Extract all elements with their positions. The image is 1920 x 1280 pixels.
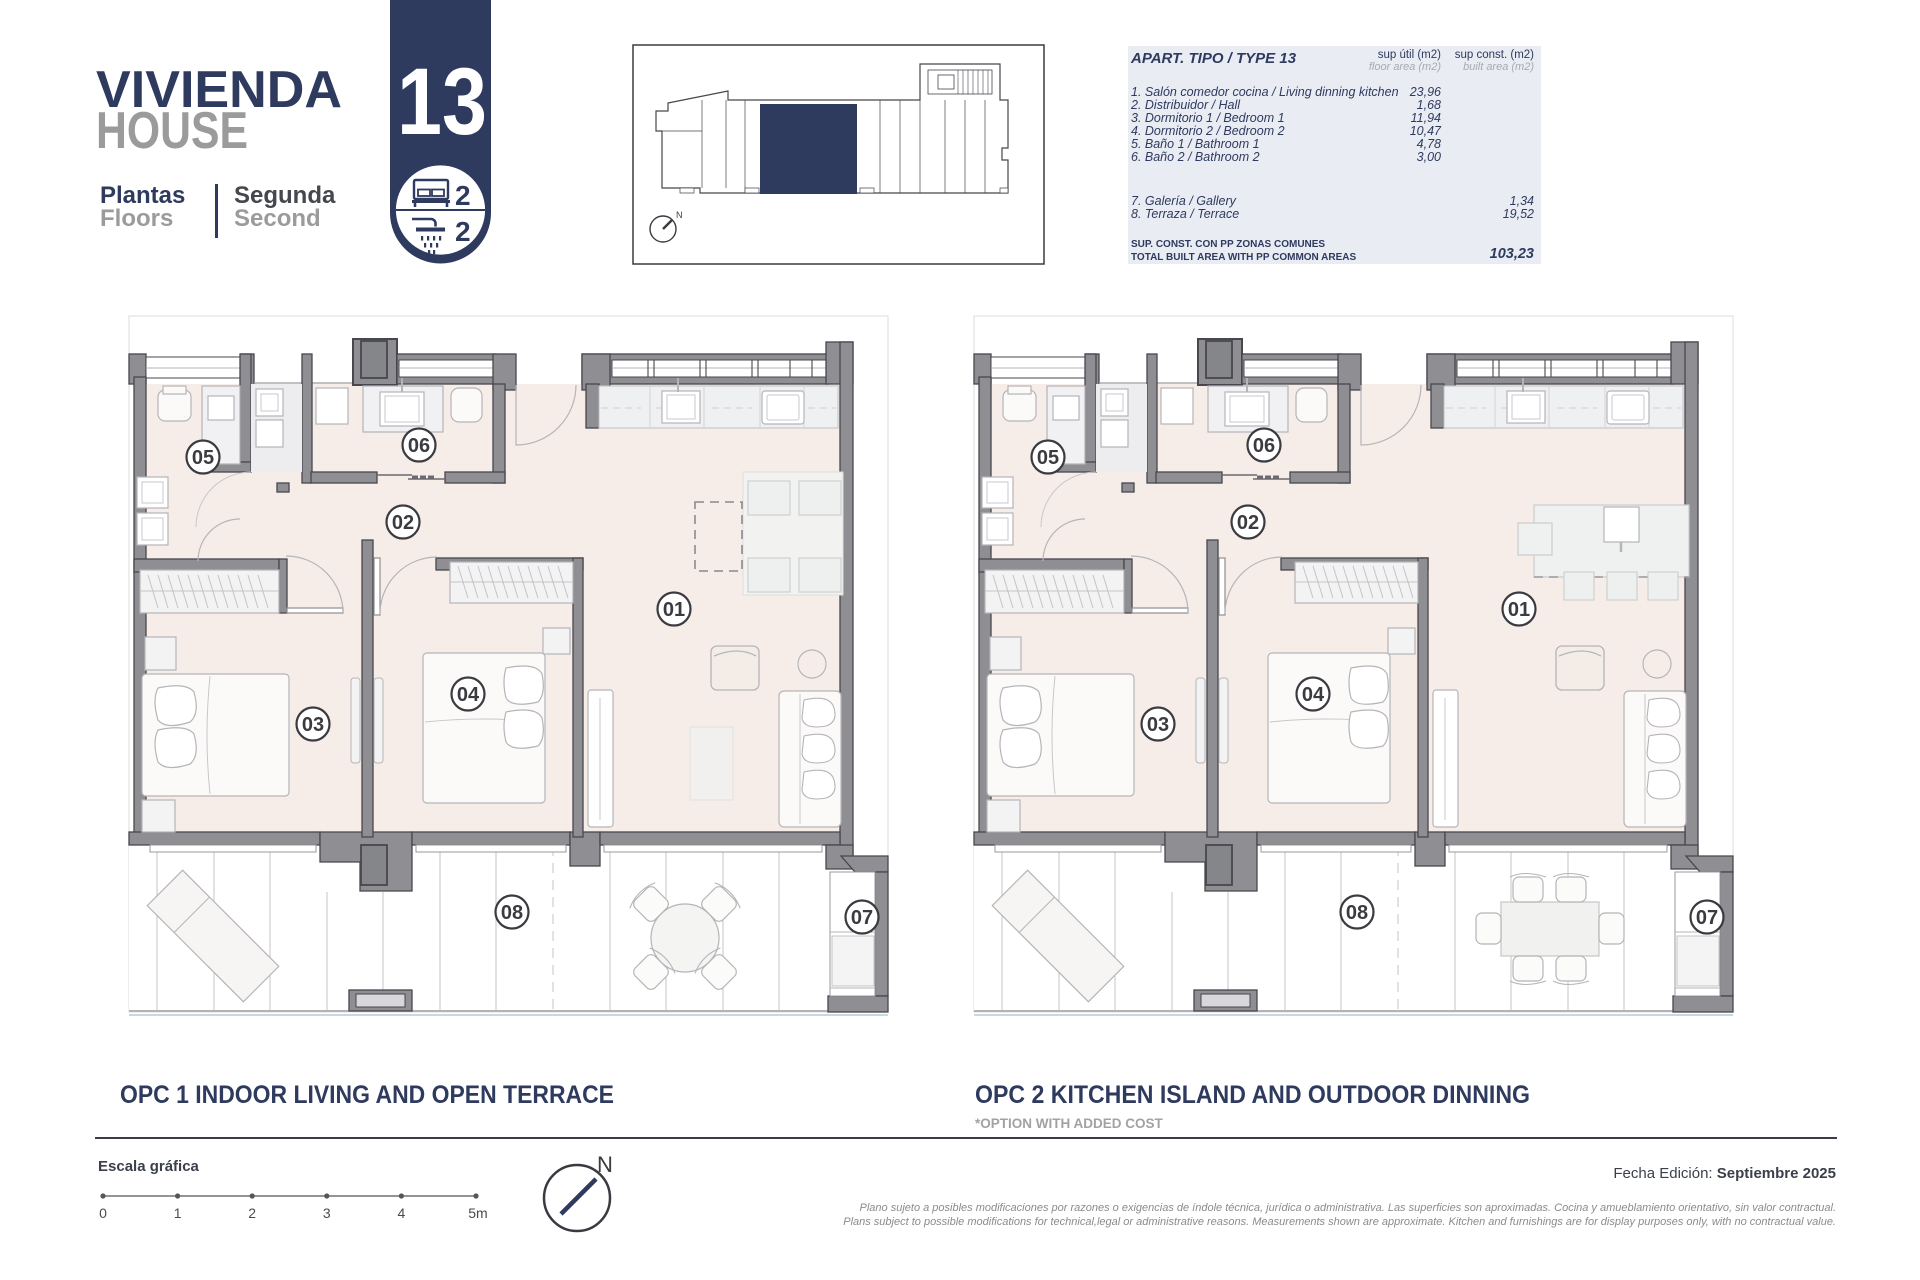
svg-text:0: 0 bbox=[99, 1205, 107, 1221]
svg-text:3,00: 3,00 bbox=[1417, 150, 1441, 164]
svg-text:4. Dormitorio 2 / Bedroom 2: 4. Dormitorio 2 / Bedroom 2 bbox=[1131, 124, 1285, 138]
svg-text:3. Dormitorio 1 / Bedroom 1: 3. Dormitorio 1 / Bedroom 1 bbox=[1131, 111, 1285, 125]
svg-text:Plans subject to possible modi: Plans subject to possible modifications … bbox=[843, 1216, 1836, 1228]
svg-text:19,52: 19,52 bbox=[1503, 207, 1534, 221]
svg-text:4,78: 4,78 bbox=[1417, 137, 1441, 151]
svg-text:23,96: 23,96 bbox=[1409, 85, 1441, 99]
svg-text:TOTAL BUILT AREA WITH PP COMMO: TOTAL BUILT AREA WITH PP COMMON AREAS bbox=[1131, 252, 1357, 263]
svg-text:*OPTION WITH ADDED COST: *OPTION WITH ADDED COST bbox=[975, 1116, 1164, 1131]
svg-text:OPC 1 INDOOR LIVING AND OPEN T: OPC 1 INDOOR LIVING AND OPEN TERRACE bbox=[120, 1081, 614, 1109]
svg-text:11,94: 11,94 bbox=[1411, 111, 1441, 125]
svg-text:1,34: 1,34 bbox=[1510, 194, 1534, 208]
svg-text:HOUSE: HOUSE bbox=[96, 102, 248, 160]
svg-text:103,23: 103,23 bbox=[1490, 246, 1534, 262]
svg-text:Escala gráfica: Escala gráfica bbox=[98, 1158, 200, 1175]
svg-text:Floors: Floors bbox=[100, 205, 173, 232]
svg-text:7. Galería / Gallery: 7. Galería / Gallery bbox=[1131, 194, 1237, 208]
svg-text:3: 3 bbox=[323, 1205, 331, 1221]
svg-text:13: 13 bbox=[397, 49, 487, 155]
svg-text:built area (m2): built area (m2) bbox=[1463, 61, 1534, 73]
svg-text:1. Salón comedor cocina / Livi: 1. Salón comedor cocina / Living dinning… bbox=[1131, 85, 1399, 99]
svg-text:APART. TIPO / TYPE 13: APART. TIPO / TYPE 13 bbox=[1130, 50, 1297, 67]
svg-text:2: 2 bbox=[455, 216, 471, 247]
svg-text:OPC 2 KITCHEN ISLAND AND OUTDO: OPC 2 KITCHEN ISLAND AND OUTDOOR DINNING bbox=[975, 1081, 1530, 1109]
svg-text:10,47: 10,47 bbox=[1410, 124, 1442, 138]
svg-text:1,68: 1,68 bbox=[1417, 98, 1441, 112]
svg-text:4: 4 bbox=[398, 1205, 406, 1221]
svg-text:Fecha Edición: Septiembre 2025: Fecha Edición: Septiembre 2025 bbox=[1613, 1165, 1836, 1182]
svg-text:5. Baño 1 / Bathroom 1: 5. Baño 1 / Bathroom 1 bbox=[1131, 137, 1260, 151]
svg-text:5m: 5m bbox=[468, 1205, 487, 1221]
svg-text:sup const. (m2): sup const. (m2) bbox=[1455, 49, 1534, 61]
svg-text:Second: Second bbox=[234, 205, 321, 232]
svg-text:SUP. CONST. CON PP ZONAS COMUN: SUP. CONST. CON PP ZONAS COMUNES bbox=[1131, 239, 1325, 250]
svg-text:1: 1 bbox=[174, 1205, 182, 1221]
svg-text:6. Baño 2 / Bathroom 2: 6. Baño 2 / Bathroom 2 bbox=[1131, 150, 1260, 164]
svg-text:2: 2 bbox=[455, 180, 471, 211]
svg-text:2. Distribuidor / Hall: 2. Distribuidor / Hall bbox=[1130, 98, 1241, 112]
svg-text:2: 2 bbox=[248, 1205, 256, 1221]
svg-text:floor area (m2): floor area (m2) bbox=[1369, 61, 1441, 73]
svg-text:N: N bbox=[597, 1152, 613, 1177]
svg-text:8. Terraza / Terrace: 8. Terraza / Terrace bbox=[1131, 207, 1239, 221]
svg-text:N: N bbox=[676, 210, 683, 220]
svg-text:Plano sujeto a posibles modifi: Plano sujeto a posibles modificaciones p… bbox=[860, 1202, 1836, 1214]
svg-text:sup útil (m2): sup útil (m2) bbox=[1378, 49, 1441, 61]
